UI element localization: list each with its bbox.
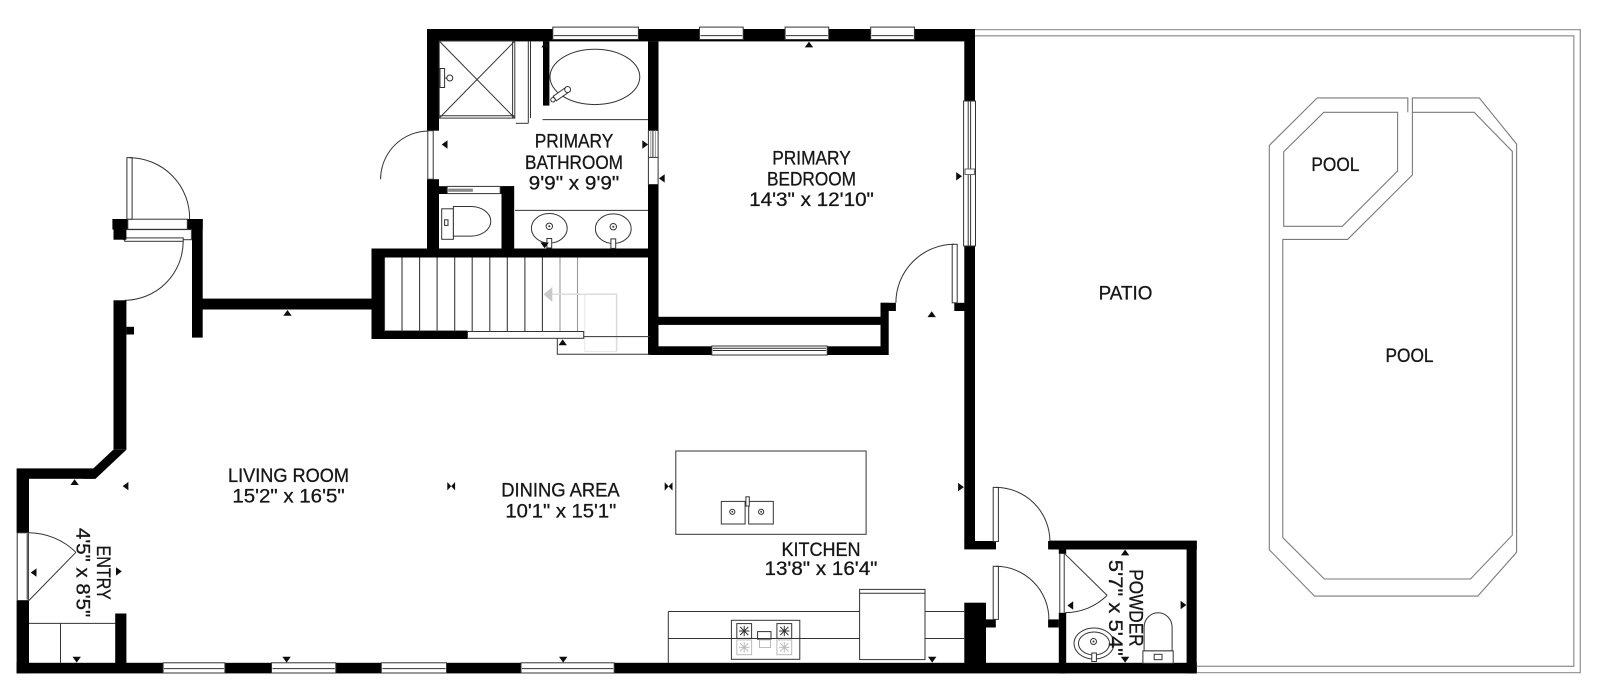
svg-text:14'3" x 12'10": 14'3" x 12'10" bbox=[749, 189, 874, 211]
svg-text:LIVING ROOM: LIVING ROOM bbox=[228, 465, 349, 487]
svg-text:POOL: POOL bbox=[1311, 154, 1359, 176]
svg-text:5'7" x 5'4": 5'7" x 5'4" bbox=[1104, 560, 1126, 656]
svg-text:13'8" x 16'4": 13'8" x 16'4" bbox=[765, 558, 878, 580]
svg-text:ENTRY: ENTRY bbox=[92, 545, 114, 599]
svg-text:PRIMARY: PRIMARY bbox=[535, 131, 614, 153]
svg-text:10'1" x 15'1": 10'1" x 15'1" bbox=[505, 501, 616, 523]
svg-text:BEDROOM: BEDROOM bbox=[767, 168, 856, 190]
svg-text:POOL: POOL bbox=[1386, 345, 1434, 367]
svg-text:4'5" x 8'5": 4'5" x 8'5" bbox=[72, 528, 94, 617]
svg-text:DINING AREA: DINING AREA bbox=[501, 480, 619, 502]
svg-text:PATIO: PATIO bbox=[1099, 283, 1153, 305]
svg-text:9'9" x 9'9": 9'9" x 9'9" bbox=[529, 173, 620, 195]
svg-text:POWDER: POWDER bbox=[1124, 569, 1146, 646]
svg-text:BATHROOM: BATHROOM bbox=[525, 152, 623, 174]
svg-text:PRIMARY: PRIMARY bbox=[772, 148, 851, 170]
svg-text:15'2" x 16'5": 15'2" x 16'5" bbox=[232, 485, 344, 507]
